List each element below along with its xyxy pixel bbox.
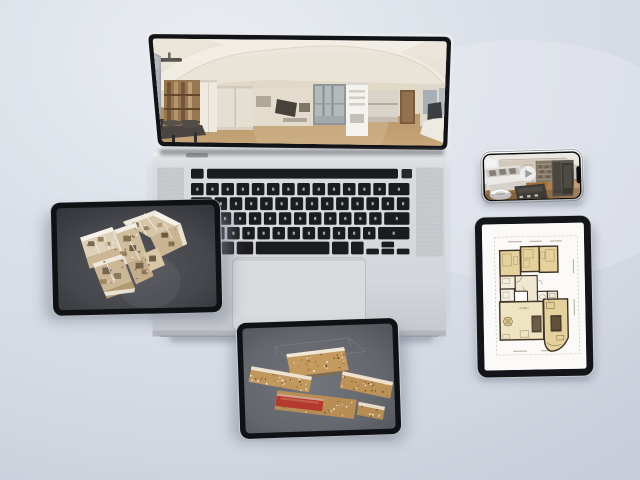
- svg-text:LIVING: LIVING: [518, 306, 529, 310]
